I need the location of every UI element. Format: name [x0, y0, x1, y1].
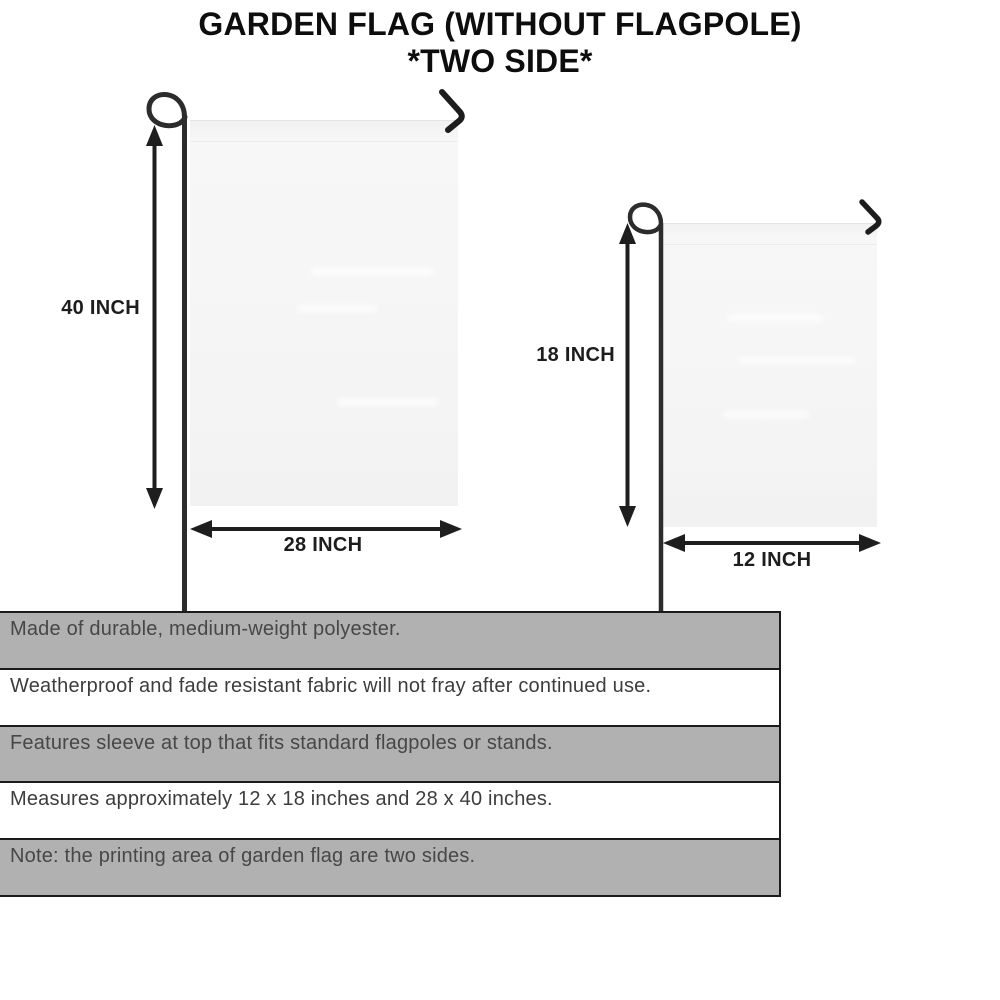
page-subtitle: *TWO SIDE*	[0, 43, 1000, 79]
feature-text: Features sleeve at top that fits standar…	[10, 732, 553, 755]
feature-row: Made of durable, medium-weight polyester…	[0, 613, 779, 668]
small-flag-canvas	[663, 223, 877, 527]
fabric-highlight	[297, 305, 377, 312]
fabric-highlight	[727, 314, 823, 322]
sleeve-seam	[663, 244, 877, 245]
feature-row: Features sleeve at top that fits standar…	[0, 725, 779, 782]
large-flag-width-label: 28 INCH	[233, 534, 413, 557]
feature-text: Note: the printing area of garden flag a…	[10, 845, 475, 868]
height-arrow-icon	[614, 220, 642, 530]
sleeve-seam	[190, 141, 458, 142]
feature-row: Note: the printing area of garden flag a…	[0, 838, 779, 895]
small-flag-width-label: 12 INCH	[682, 549, 862, 572]
fabric-highlight	[311, 267, 434, 276]
title-block: GARDEN FLAG (WITHOUT FLAGPOLE) *TWO SIDE…	[0, 6, 1000, 79]
fabric-highlight	[738, 357, 856, 364]
fabric-highlight	[723, 411, 809, 418]
features-table: Made of durable, medium-weight polyester…	[0, 611, 781, 897]
feature-text: Measures approximately 12 x 18 inches an…	[10, 788, 553, 811]
large-flag-height-label: 40 INCH	[45, 297, 140, 320]
large-flag-canvas	[190, 120, 458, 506]
garden-flag-infographic: GARDEN FLAG (WITHOUT FLAGPOLE) *TWO SIDE…	[0, 0, 1000, 1000]
flag-hook-icon	[435, 85, 475, 140]
feature-row: Measures approximately 12 x 18 inches an…	[0, 781, 779, 838]
feature-row: Weatherproof and fade resistant fabric w…	[0, 668, 779, 725]
small-flag-height-label: 18 INCH	[520, 344, 615, 367]
height-arrow-icon	[141, 122, 169, 512]
page-title: GARDEN FLAG (WITHOUT FLAGPOLE)	[0, 6, 1000, 43]
feature-text: Made of durable, medium-weight polyester…	[10, 618, 401, 641]
feature-text: Weatherproof and fade resistant fabric w…	[10, 675, 651, 698]
fabric-highlight	[337, 398, 439, 406]
flag-hook-icon	[856, 197, 892, 242]
